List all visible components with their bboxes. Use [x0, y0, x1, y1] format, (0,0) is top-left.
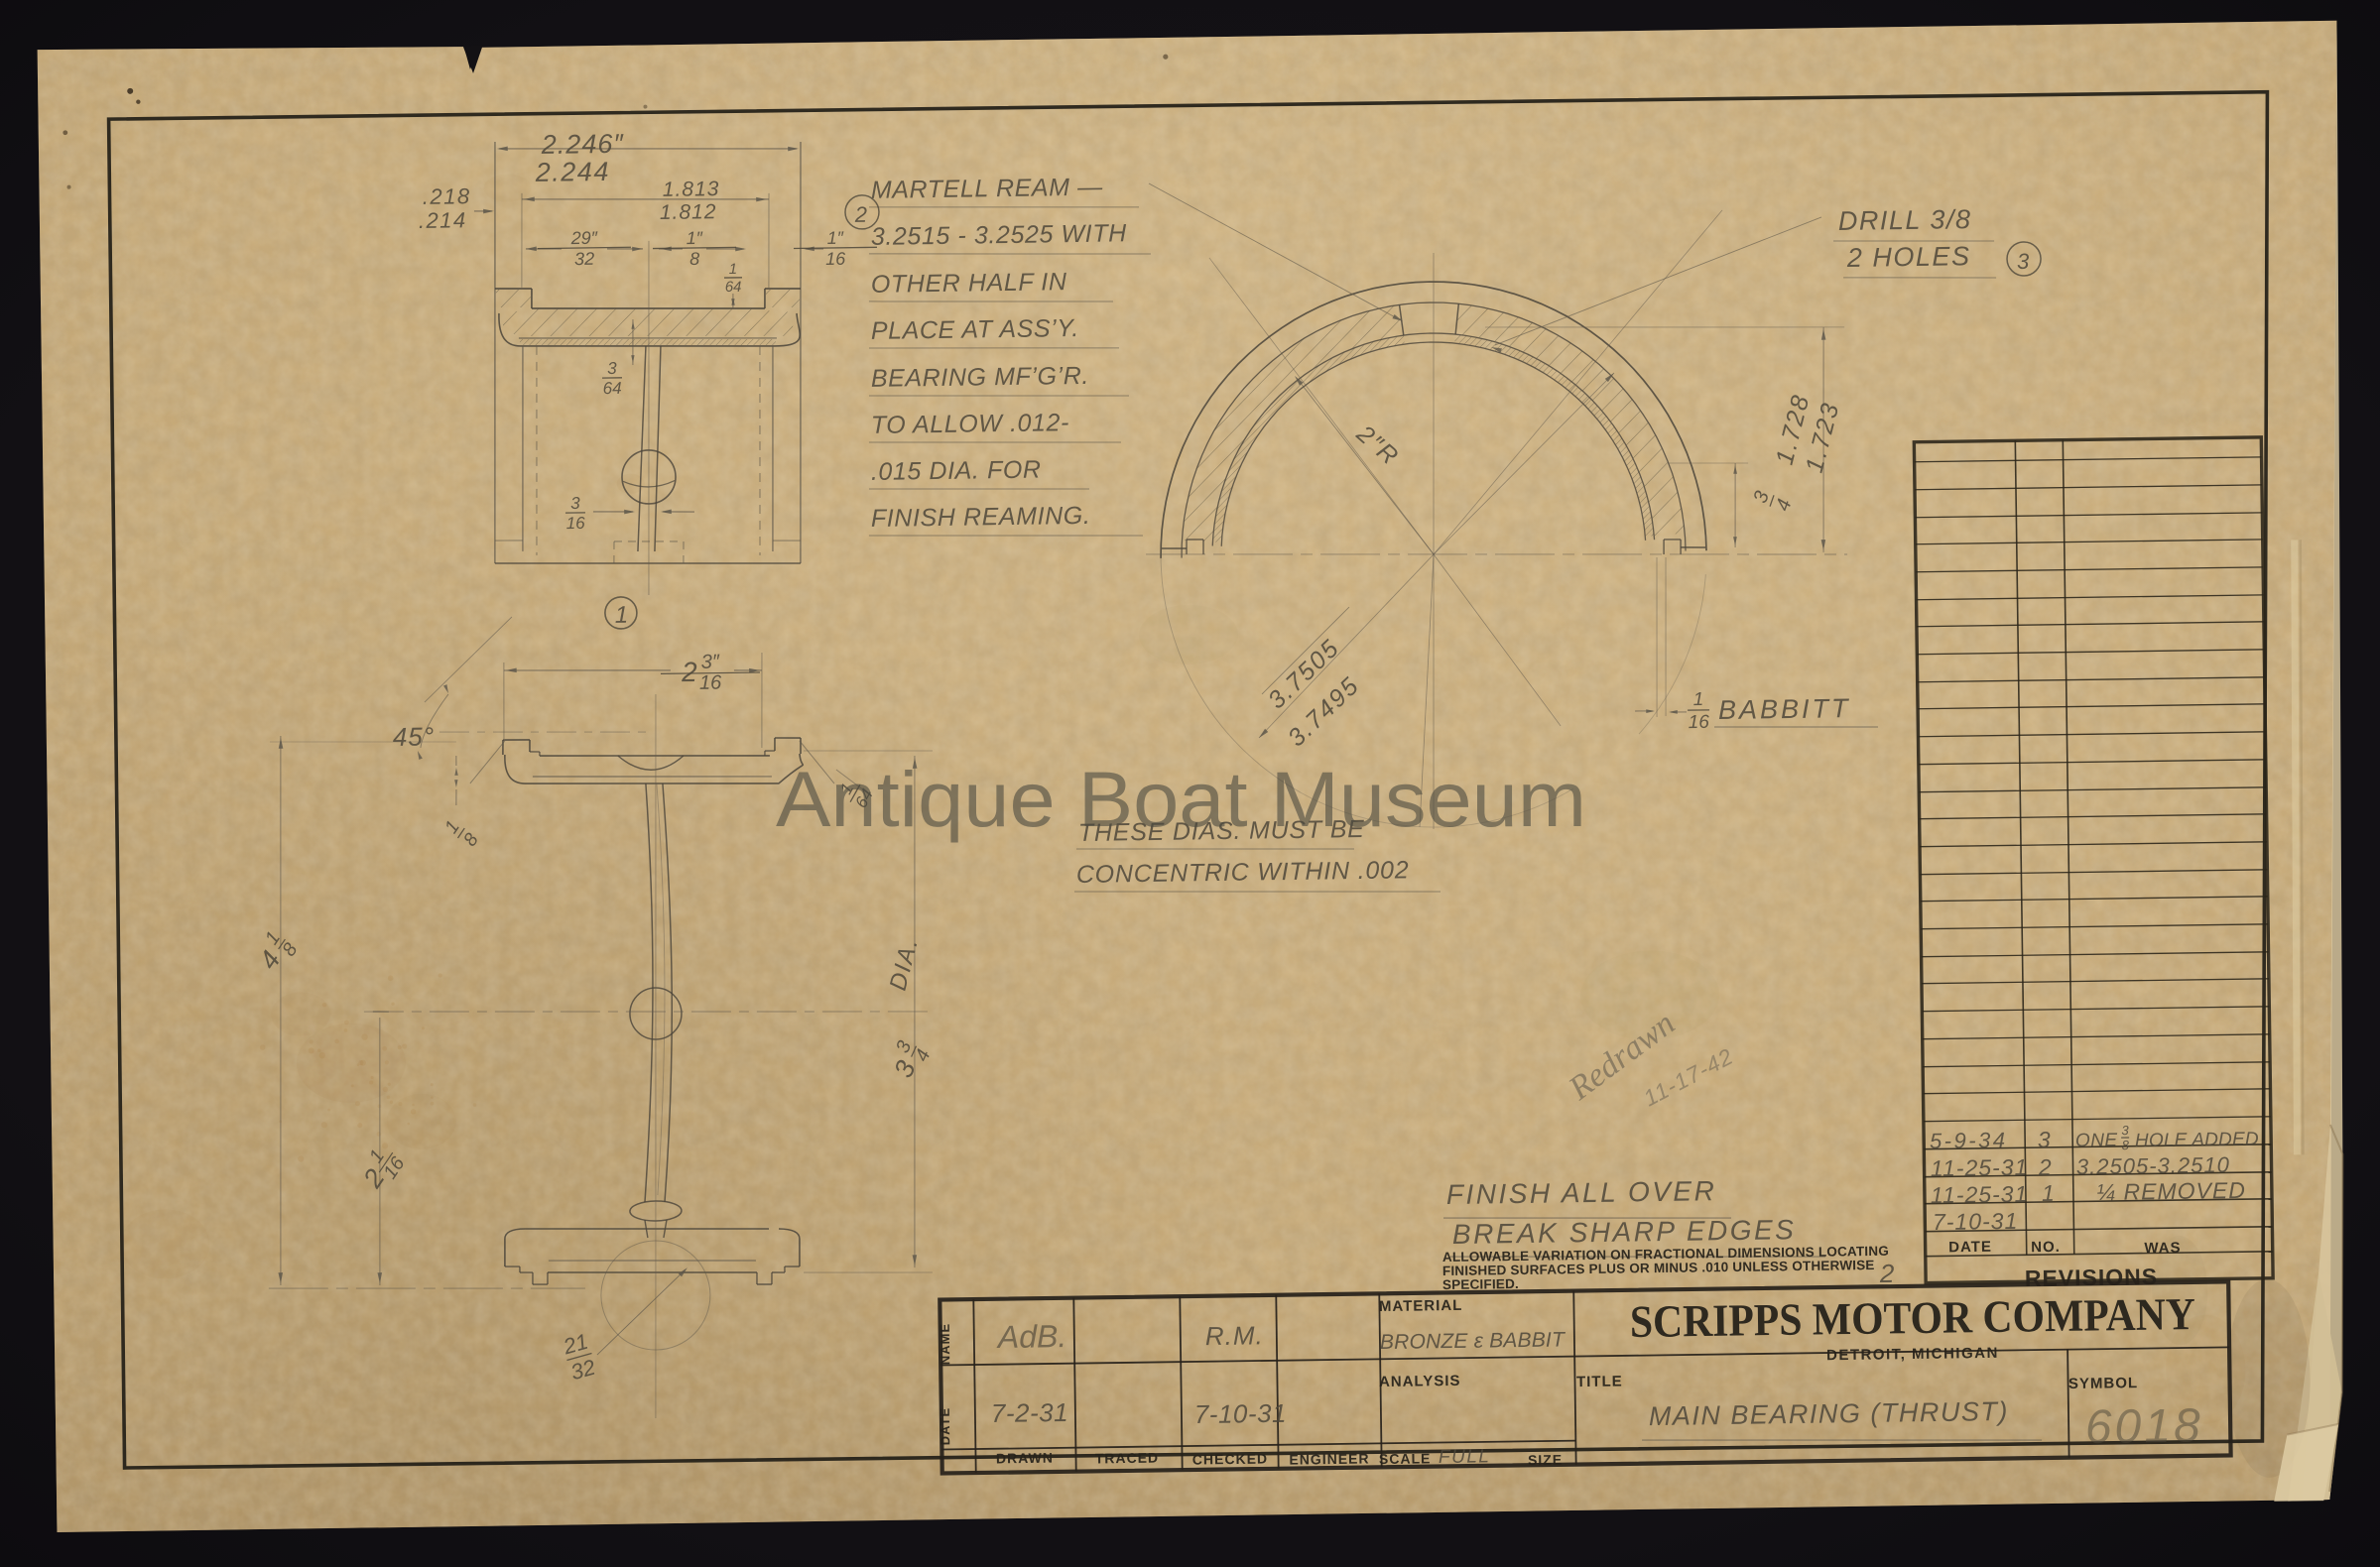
svg-text:OTHER HALF IN: OTHER HALF IN	[871, 268, 1067, 299]
svg-text:ONE: ONE	[2075, 1130, 2118, 1151]
svg-text:NAME: NAME	[938, 1323, 953, 1365]
svg-text:7-10-31: 7-10-31	[1933, 1208, 2019, 1235]
svg-text:3.2515 - 3.2525 WITH: 3.2515 - 3.2525 WITH	[871, 219, 1128, 251]
svg-text:DRAWN: DRAWN	[996, 1450, 1054, 1467]
svg-text:1.812: 1.812	[660, 200, 717, 224]
svg-text:8: 8	[689, 249, 699, 269]
svg-text:BEARING MF’G’R.: BEARING MF’G’R.	[871, 362, 1089, 393]
svg-text:16: 16	[825, 249, 846, 269]
svg-text:3: 3	[2121, 1123, 2129, 1138]
svg-text:3.2505-3.2510: 3.2505-3.2510	[2076, 1152, 2230, 1179]
svg-text:7-10-31: 7-10-31	[1194, 1398, 1288, 1429]
svg-text:2: 2	[854, 202, 868, 227]
svg-text:NO.: NO.	[2031, 1239, 2061, 1256]
svg-text:.218: .218	[423, 183, 471, 209]
svg-text:FINISH REAMING.: FINISH REAMING.	[871, 502, 1091, 533]
svg-text:2: 2	[1879, 1259, 1895, 1288]
svg-text:FULL: FULL	[1439, 1446, 1491, 1468]
svg-text:16: 16	[699, 672, 723, 694]
svg-text:TO ALLOW .012-: TO ALLOW .012-	[871, 409, 1070, 439]
svg-text:FINISH ALL OVER: FINISH ALL OVER	[1446, 1175, 1717, 1210]
svg-text:DETROIT, MICHIGAN: DETROIT, MICHIGAN	[1826, 1345, 1999, 1364]
svg-text:.015 DIA. FOR: .015 DIA. FOR	[871, 456, 1042, 486]
svg-text:DATE: DATE	[1948, 1239, 1992, 1257]
svg-text:TRACED: TRACED	[1095, 1450, 1160, 1467]
svg-text:16: 16	[566, 514, 586, 533]
svg-text:R.M.: R.M.	[1205, 1320, 1264, 1351]
svg-text:1.813: 1.813	[663, 178, 720, 201]
svg-text:MATERIAL: MATERIAL	[1379, 1297, 1463, 1315]
svg-text:CHECKED: CHECKED	[1192, 1451, 1268, 1468]
svg-text:PLACE AT ASS’Y.: PLACE AT ASS’Y.	[871, 314, 1079, 345]
svg-text:BREAK SHARP EDGES: BREAK SHARP EDGES	[1452, 1214, 1797, 1250]
svg-text:29″: 29″	[569, 228, 597, 248]
svg-text:1″: 1″	[827, 228, 844, 248]
svg-text:16: 16	[1689, 712, 1710, 733]
svg-text:SCRIPPS MOTOR COMPANY: SCRIPPS MOTOR COMPANY	[1630, 1288, 2196, 1347]
svg-text:3: 3	[607, 359, 617, 378]
svg-text:3: 3	[2038, 1127, 2051, 1152]
svg-text:1″: 1″	[686, 228, 702, 248]
svg-text:3″: 3″	[700, 652, 720, 673]
svg-text:2.244: 2.244	[535, 157, 610, 187]
svg-text:.214: .214	[419, 207, 467, 233]
svg-text:WAS: WAS	[2144, 1240, 2181, 1258]
svg-text:Antique Boat Museum: Antique Boat Museum	[776, 755, 1586, 843]
svg-text:1: 1	[1692, 689, 1703, 710]
svg-text:5-9-34: 5-9-34	[1930, 1128, 2008, 1153]
svg-text:MAIN BEARING (THRUST): MAIN BEARING (THRUST)	[1649, 1396, 2009, 1431]
svg-text:BABBITT: BABBITT	[1718, 693, 1851, 725]
svg-text:64: 64	[603, 379, 622, 398]
svg-text:SCALE: SCALE	[1379, 1450, 1432, 1467]
svg-text:11-25-31: 11-25-31	[1931, 1154, 2029, 1181]
svg-text:1: 1	[615, 602, 629, 629]
svg-text:3: 3	[570, 494, 580, 513]
svg-text:6018: 6018	[2085, 1399, 2204, 1454]
svg-text:3: 3	[2017, 249, 2030, 274]
svg-text:TITLE: TITLE	[1576, 1373, 1623, 1390]
svg-text:8: 8	[2122, 1138, 2130, 1152]
svg-text:SYMBOL: SYMBOL	[2068, 1375, 2138, 1392]
svg-text:CONCENTRIC WITHIN .002: CONCENTRIC WITHIN .002	[1076, 856, 1410, 889]
svg-text:11-25-31: 11-25-31	[1931, 1181, 2029, 1208]
svg-text:1: 1	[729, 261, 738, 278]
svg-text:BRONZE ε BABBIT: BRONZE ε BABBIT	[1380, 1328, 1566, 1354]
svg-text:¼ REMOVED: ¼ REMOVED	[2096, 1177, 2246, 1205]
svg-text:ENGINEER: ENGINEER	[1289, 1451, 1369, 1468]
svg-text:64: 64	[725, 279, 742, 296]
svg-text:2: 2	[681, 657, 697, 687]
svg-text:DRILL 3/8: DRILL 3/8	[1838, 204, 1972, 236]
svg-text:HOLE ADDED: HOLE ADDED	[2135, 1129, 2259, 1151]
svg-text:AdB.: AdB.	[996, 1318, 1067, 1355]
svg-text:DATE: DATE	[938, 1407, 953, 1446]
svg-text:2 HOLES: 2 HOLES	[1846, 241, 1971, 273]
svg-text:7-2-31: 7-2-31	[991, 1397, 1069, 1428]
svg-text:2.246″: 2.246″	[541, 129, 625, 160]
svg-text:1: 1	[2042, 1180, 2055, 1206]
svg-text:REVISIONS: REVISIONS	[2025, 1264, 2159, 1291]
svg-text:SIZE: SIZE	[1528, 1452, 1563, 1468]
svg-text:ANALYSIS: ANALYSIS	[1379, 1373, 1461, 1390]
svg-text:MARTELL REAM —: MARTELL REAM —	[871, 174, 1104, 204]
svg-text:2: 2	[2038, 1154, 2052, 1180]
svg-text:32: 32	[574, 249, 594, 269]
